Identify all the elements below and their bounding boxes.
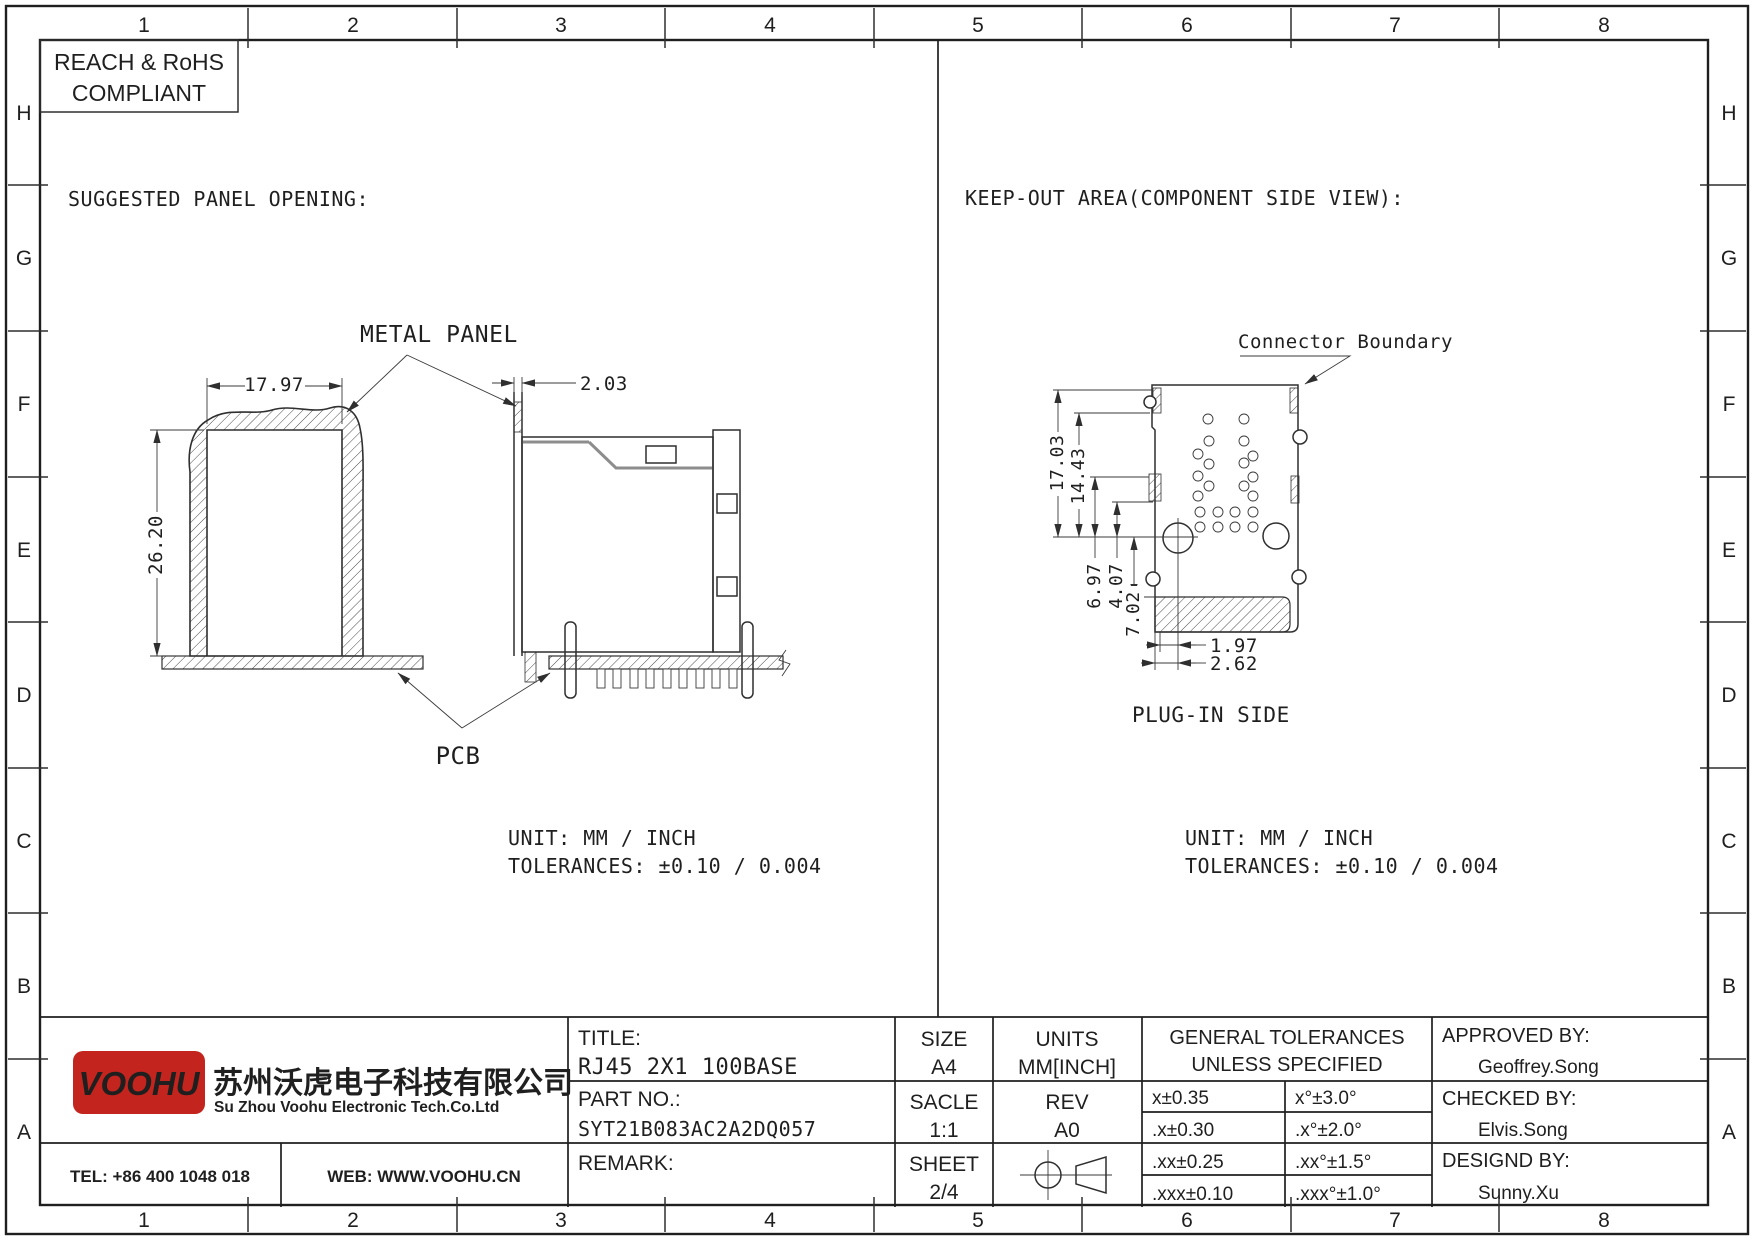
units-value: MM[INCH] <box>1018 1056 1116 1079</box>
connector-boundary-label: Connector Boundary <box>1238 331 1453 353</box>
tol-ang-2: .xx°±1.5° <box>1295 1152 1371 1173</box>
pcb-label: PCB <box>436 742 481 770</box>
grid-col-label: 4 <box>764 14 776 37</box>
metal-panel-front <box>189 407 363 656</box>
metal-panel-callout: METAL PANEL <box>347 322 518 412</box>
title-label: TITLE: <box>578 1027 641 1050</box>
grid-col-label: 8 <box>1598 1209 1610 1232</box>
grid-col-label: 3 <box>555 1209 567 1232</box>
keepout-hatch <box>1155 597 1290 632</box>
dim-panel-width-text: 17.97 <box>244 374 304 396</box>
panel-opening-view: SUGGESTED PANEL OPENING: 17.97 26.20 MET… <box>68 187 822 878</box>
rev-label: REV <box>1045 1091 1088 1114</box>
dim-7-02: 7.02 <box>1123 591 1144 636</box>
size-value: A4 <box>931 1056 957 1079</box>
right-unit-note: UNIT: MM / INCH <box>1185 826 1373 850</box>
grid-col-label: 5 <box>972 14 984 37</box>
designed-by-value: Sunny.Xu <box>1478 1183 1559 1204</box>
metal-panel-label: METAL PANEL <box>360 322 518 348</box>
connector-boundary-outline <box>1152 385 1298 632</box>
pcb-strip-front <box>162 656 423 669</box>
grid-row-label: D <box>16 684 31 707</box>
grid-row-label: H <box>1721 102 1736 125</box>
connector-boundary-callout: Connector Boundary <box>1238 331 1453 384</box>
compliance-line1: REACH & RoHS <box>54 49 224 75</box>
tol-ang-3: .xxx°±1.0° <box>1295 1184 1381 1205</box>
grid-row-label: G <box>1721 247 1737 270</box>
remark-label: REMARK: <box>578 1152 674 1175</box>
grid-row-label: G <box>16 247 32 270</box>
grid-row-label: C <box>16 830 31 853</box>
grid-row-label: D <box>1721 684 1736 707</box>
dim-panel-thickness-text: 2.03 <box>580 373 628 395</box>
grid-col-label: 6 <box>1181 14 1193 37</box>
left-unit-note: UNIT: MM / INCH <box>508 826 696 850</box>
keepout-view: KEEP-OUT AREA(COMPONENT SIDE VIEW): <box>965 186 1499 878</box>
company-tel: TEL: +86 400 1048 018 <box>70 1167 250 1186</box>
tol-ang-1: .x°±2.0° <box>1295 1120 1362 1141</box>
pcb-callout: PCB <box>398 673 550 770</box>
mounting-holes <box>1144 396 1307 586</box>
grid-row-label: A <box>1722 1121 1736 1144</box>
units-label: UNITS <box>1036 1028 1099 1051</box>
scale-value: 1:1 <box>929 1119 958 1142</box>
grid-col-label: 7 <box>1389 14 1401 37</box>
grid-col-label: 6 <box>1181 1209 1193 1232</box>
grid-col-label: 8 <box>1598 14 1610 37</box>
pcb-strip-side <box>549 656 783 669</box>
grid-row-label: C <box>1721 830 1736 853</box>
grid-row-label: E <box>17 539 31 562</box>
grid-col-label: 2 <box>347 1209 359 1232</box>
grid-col-label: 1 <box>138 14 150 37</box>
sheet-label: SHEET <box>909 1153 979 1176</box>
scale-label: SACLE <box>910 1091 979 1114</box>
dim-6-97: 6.97 <box>1084 563 1105 608</box>
tol-lin-2: .xx±0.25 <box>1152 1152 1224 1173</box>
compliance-box: REACH & RoHS COMPLIANT <box>40 40 238 112</box>
designed-by-label: DESIGND BY: <box>1442 1150 1570 1172</box>
approved-by-label: APPROVED BY: <box>1442 1025 1590 1047</box>
part-no-label: PART NO.: <box>578 1088 681 1111</box>
tol-lin-3: .xxx±0.10 <box>1152 1184 1233 1205</box>
approved-by-value: Geoffrey.Song <box>1478 1057 1599 1078</box>
pin-comb <box>597 669 737 688</box>
rev-value: A0 <box>1054 1119 1080 1142</box>
grid-row-label: E <box>1722 539 1736 562</box>
tolerance-header2: UNLESS SPECIFIED <box>1191 1054 1382 1076</box>
left-heading: SUGGESTED PANEL OPENING: <box>68 187 369 211</box>
grid-col-label: 2 <box>347 14 359 37</box>
engineering-drawing-sheet: 1 2 3 4 5 6 7 8 1 2 3 4 5 6 7 8 H G F E … <box>0 0 1754 1240</box>
checked-by-label: CHECKED BY: <box>1442 1088 1576 1110</box>
sheet-value: 2/4 <box>929 1181 959 1204</box>
dim-17-03: 17.03 <box>1047 435 1068 492</box>
left-tolerance-note: TOLERANCES: ±0.10 / 0.004 <box>508 854 822 878</box>
voohu-logo-text: VOOHU <box>78 1065 200 1102</box>
grid-row-label: B <box>17 975 31 998</box>
compliance-line2: COMPLIANT <box>72 80 206 106</box>
pin-hole-pattern <box>1193 414 1258 532</box>
company-name-en: Su Zhou Voohu Electronic Tech.Co.Ltd <box>214 1099 499 1116</box>
drawing-canvas: 1 2 3 4 5 6 7 8 1 2 3 4 5 6 7 8 H G F E … <box>0 0 1754 1240</box>
projection-symbol-icon <box>1020 1150 1112 1200</box>
grid-row-labels: H G F E D C B A H G F E D C B A <box>16 102 1737 1144</box>
large-hole <box>1263 523 1289 549</box>
dim-panel-height-text: 26.20 <box>145 515 167 575</box>
tol-ang-0: x°±3.0° <box>1295 1088 1357 1109</box>
company-cell: VOOHU 苏州沃虎电子科技有限公司 Su Zhou Voohu Electro… <box>70 1051 573 1186</box>
checked-by-value: Elvis.Song <box>1478 1120 1568 1141</box>
grid-row-label: A <box>17 1121 31 1144</box>
keepout-dims-bottom: 1.97 2.62 <box>1141 632 1258 675</box>
right-heading: KEEP-OUT AREA(COMPONENT SIDE VIEW): <box>965 186 1404 210</box>
size-label: SIZE <box>921 1028 968 1051</box>
title-block: VOOHU 苏州沃虎电子科技有限公司 Su Zhou Voohu Electro… <box>40 1017 1708 1207</box>
tolerance-header1: GENERAL TOLERANCES <box>1169 1027 1404 1049</box>
grid-col-label: 7 <box>1389 1209 1401 1232</box>
tol-lin-0: x±0.35 <box>1152 1088 1209 1109</box>
dim-2-62: 2.62 <box>1210 653 1258 675</box>
tol-lin-1: .x±0.30 <box>1152 1120 1214 1141</box>
dim-14-43: 14.43 <box>1068 448 1089 505</box>
grid-row-label: H <box>16 102 31 125</box>
grid-col-label: 1 <box>138 1209 150 1232</box>
company-web: WEB: WWW.VOOHU.CN <box>327 1167 521 1186</box>
wall-hatch <box>1290 388 1298 413</box>
grid-col-label: 5 <box>972 1209 984 1232</box>
wall-hatch <box>1291 476 1299 503</box>
wall-hatch <box>1149 474 1161 501</box>
connector-side-view: 2.03 <box>492 373 753 698</box>
grid-col-label: 4 <box>764 1209 776 1232</box>
part-no-value: SYT21B083AC2A2DQ057 <box>578 1117 816 1141</box>
grid-row-label: F <box>18 393 31 416</box>
plug-in-side-label: PLUG-IN SIDE <box>1132 703 1290 727</box>
company-name-cn: 苏州沃虎电子科技有限公司 <box>213 1067 573 1100</box>
tolerance-table: x±0.35 x°±3.0° .x±0.30 .x°±2.0° .xx±0.25… <box>1152 1088 1381 1205</box>
grid-row-label: B <box>1722 975 1736 998</box>
title-value: RJ45 2X1 100BASE <box>578 1055 798 1080</box>
right-tolerance-note: TOLERANCES: ±0.10 / 0.004 <box>1185 854 1499 878</box>
grid-row-label: F <box>1723 393 1736 416</box>
grid-col-label: 3 <box>555 14 567 37</box>
dim-panel-thickness: 2.03 <box>492 373 628 398</box>
